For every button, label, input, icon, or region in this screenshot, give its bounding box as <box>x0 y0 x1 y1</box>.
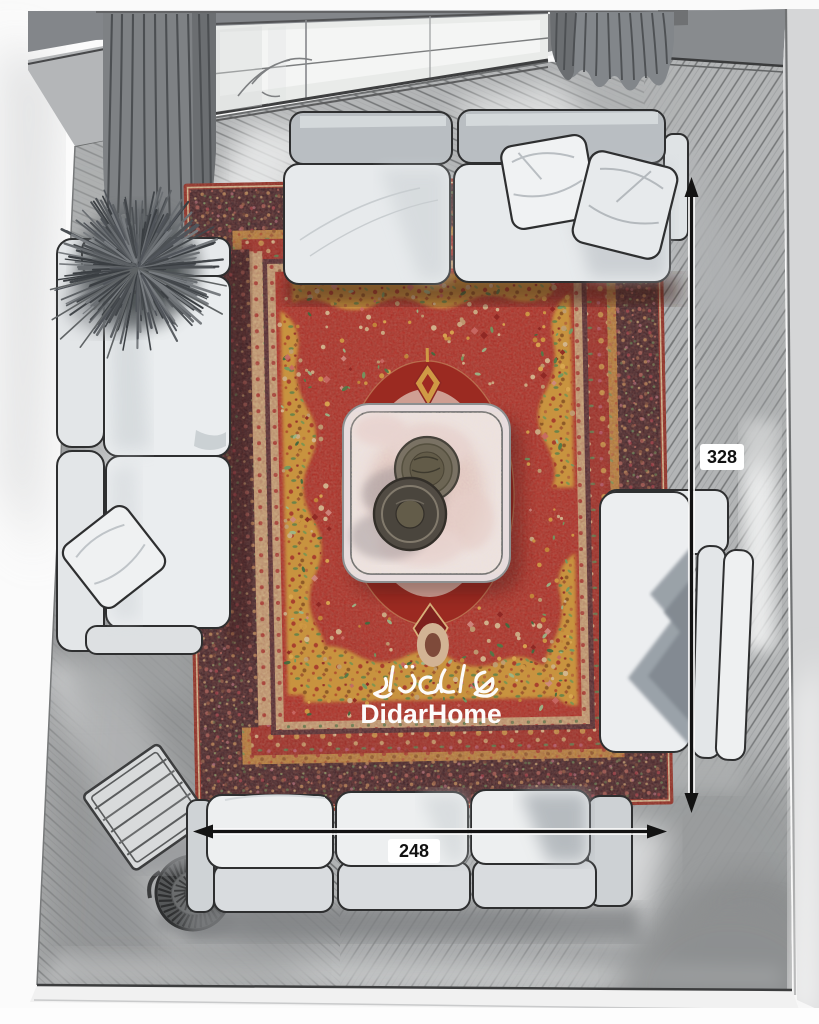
svg-text:248: 248 <box>399 841 429 861</box>
svg-text:328: 328 <box>707 447 737 467</box>
svg-text:DidarHome: DidarHome <box>360 699 501 729</box>
